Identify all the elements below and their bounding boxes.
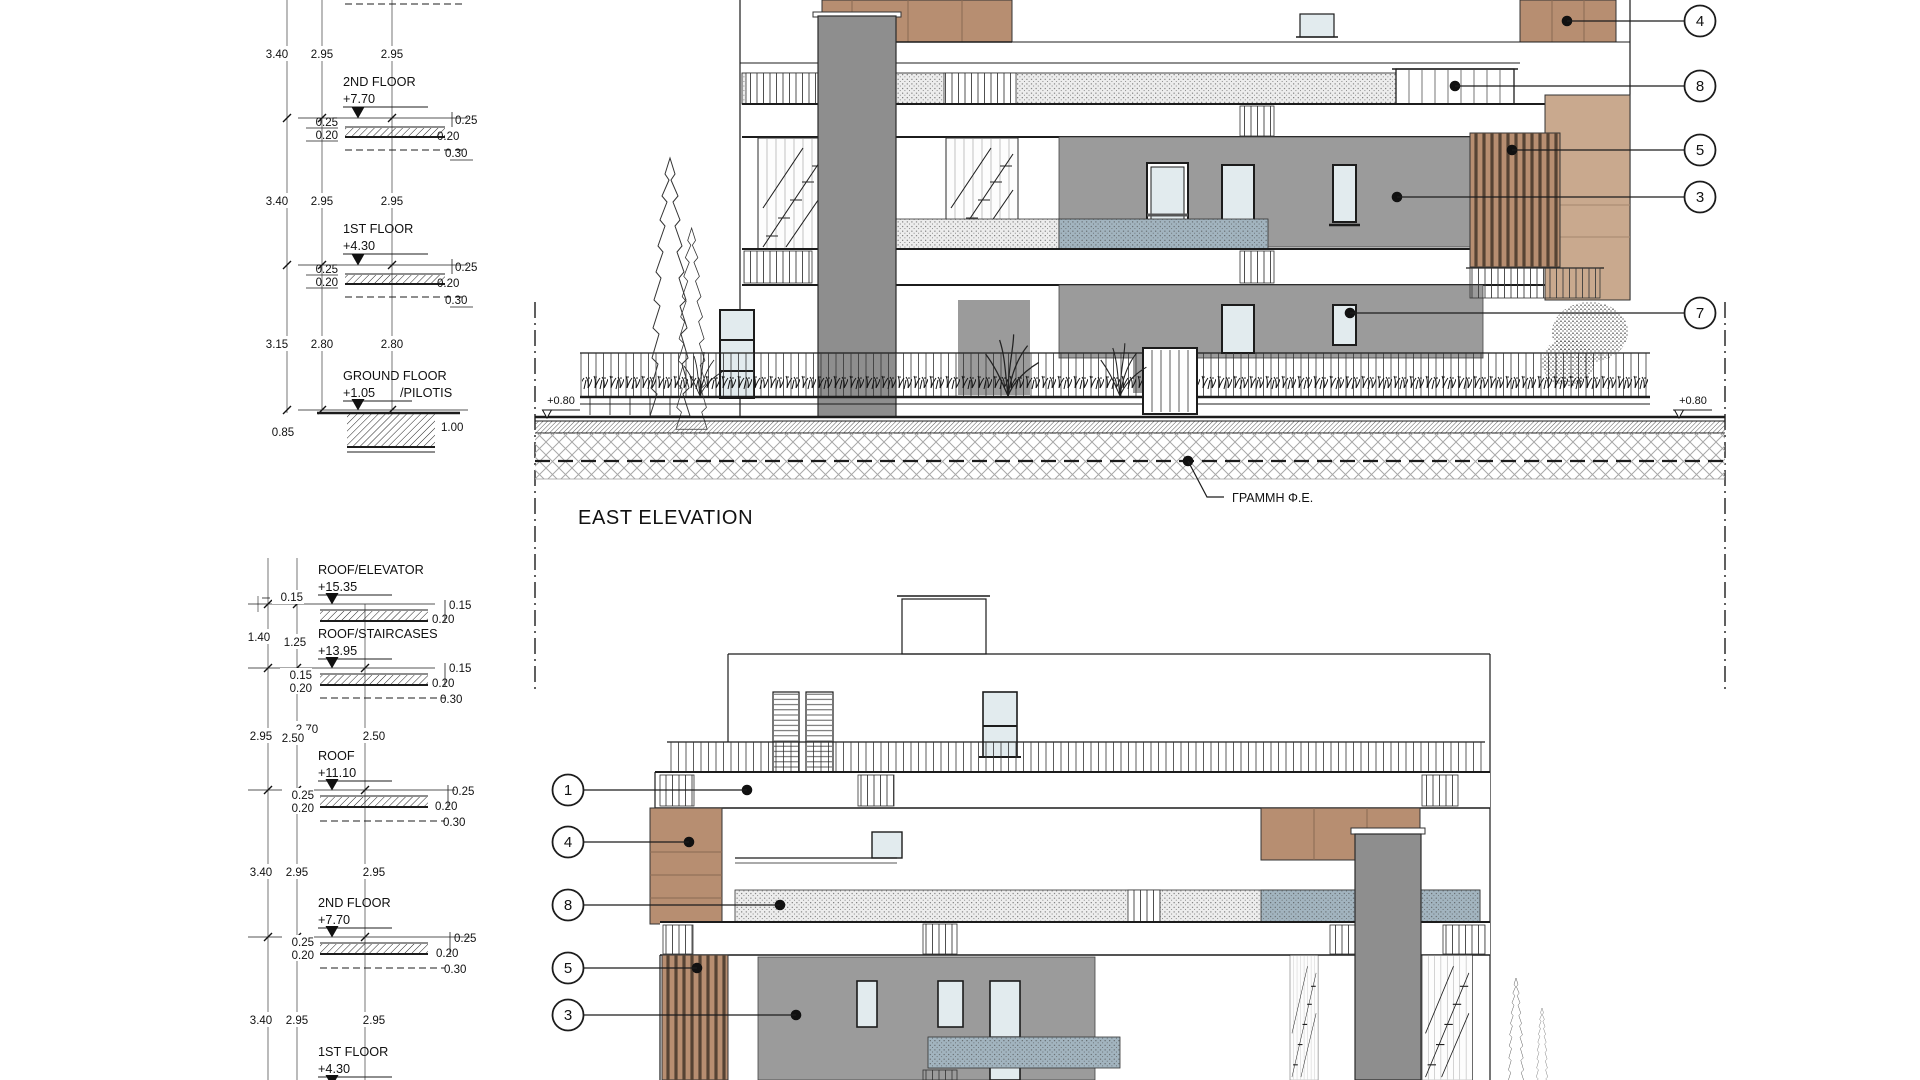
balcony-railing [1240, 106, 1274, 136]
slab-dim: 0.20 [292, 950, 314, 962]
callout-number: 4 [1696, 13, 1704, 30]
floor-label: 2ND FLOOR [343, 75, 416, 89]
floor-level-2nd: 2ND FLOOR +7.70 0.25 0.20 0.25 0.20 0.30 [298, 75, 477, 160]
east-elevation-drawing: ΓΡΑΜΜΗ Φ.Ε. +0.80 +0.80 EAST ELEVATION 4… [535, 0, 1725, 690]
fe-line-label: ΓΡΑΜΜΗ Φ.Ε. [1232, 491, 1313, 505]
slab-dim: 0.30 [445, 295, 467, 307]
dim-row: 3.40 2.95 2.95 [243, 1012, 392, 1027]
ground-level-marker-right: +0.80 [1673, 395, 1712, 418]
floor-elevation: +4.30 [343, 239, 375, 253]
slab-dim: 0.30 [440, 694, 462, 706]
slab-dim: 0.85 [272, 427, 294, 439]
slab-dim: 0.20 [436, 948, 458, 960]
slab-dim: 0.15 [290, 670, 312, 682]
dim-value: 3.40 [266, 196, 288, 208]
facade-brown-panel [650, 808, 722, 924]
level-marker-icon [326, 657, 339, 669]
callout-number: 7 [1696, 305, 1704, 322]
callout-number: 5 [564, 960, 572, 977]
slab-dim: 0.30 [445, 148, 467, 160]
balcony-railing [663, 925, 693, 954]
dim-value: 3.15 [266, 339, 288, 351]
dim-value: 2.95 [311, 49, 333, 61]
slab-hatch [320, 611, 428, 620]
slab-dim: 0.25 [455, 262, 477, 274]
dim-row: 3.40 2.95 2.95 [258, 193, 411, 208]
floor-elevation: +11.10 [318, 766, 356, 780]
slab-dim: 0.20 [437, 278, 459, 290]
floor-label: 2ND FLOOR [318, 896, 391, 910]
dim-value: 1.25 [284, 637, 306, 649]
level-marker-icon [326, 926, 339, 938]
callout-number: 8 [564, 897, 572, 914]
roof-parapet-box [902, 599, 986, 654]
window [1222, 305, 1254, 353]
callout-number: 4 [564, 834, 572, 851]
slab-dim: 0.25 [316, 117, 338, 129]
balcony-railing [744, 251, 812, 283]
slab-hatch [320, 944, 428, 953]
slab-dim: 0.25 [452, 786, 474, 798]
dim-value: 2.50 [282, 733, 304, 745]
pavement-hatch [535, 421, 1725, 433]
dim-value: 2.95 [381, 196, 403, 208]
callout-number: 5 [1696, 142, 1704, 159]
slab-dim: 0.25 [455, 115, 477, 127]
floor-label: ROOF [318, 749, 355, 763]
floor-level-ground: GROUND FLOOR +1.05 /PILOTIS 0.85 1.00 [265, 369, 468, 452]
slab-dim: 0.20 [292, 803, 314, 815]
balcony-railing [923, 1070, 957, 1080]
spiral-staircase-glazing [1290, 955, 1318, 1080]
dim-value: 3.40 [250, 867, 272, 879]
slab-hatch [320, 675, 428, 684]
ground-section [535, 417, 1725, 479]
fence-planting [582, 371, 1648, 396]
floor-label-suffix: /PILOTIS [400, 386, 452, 400]
slab-dim: 0.25 [292, 937, 314, 949]
dim-value: 2.95 [286, 1015, 308, 1027]
spiral-staircase-glazing [1422, 955, 1472, 1080]
elevation-sheet-canvas: 3.40 2.95 2.95 3.40 2.95 2.95 3.15 2.80 … [0, 0, 1920, 1080]
floor-level-2nd: 2ND FLOOR +7.70 0.25 0.20 0.25 0.20 0.30 [248, 896, 476, 976]
dim-row: 2.95 2.70 2.50 2.50 [243, 721, 392, 745]
dim-row: 3.15 2.80 2.80 [258, 336, 411, 351]
floor-elevation: +7.70 [318, 913, 350, 927]
level-value: +0.80 [547, 395, 575, 407]
slab-dim: 0.20 [432, 678, 454, 690]
balcony-railing [1470, 268, 1600, 298]
slab-dim: 0.20 [432, 614, 454, 626]
drawing-title: EAST ELEVATION [578, 507, 753, 529]
floor-label: ROOF/STAIRCASES [318, 627, 438, 641]
ground-level-marker-left: +0.80 [542, 395, 580, 418]
facade-gray-wall [1059, 285, 1483, 358]
slab-dim: 0.25 [316, 264, 338, 276]
second-elevation-drawing: 1 4 8 5 3 [553, 596, 1549, 1080]
slab-dim: 0.20 [316, 277, 338, 289]
balcony-railing [746, 73, 818, 104]
window [857, 981, 877, 1027]
slab-dim: 0.15 [449, 600, 471, 612]
bottom-dimension-stack: ROOF/ELEVATOR +15.35 0.15 0.15 0.20 1.40… [241, 558, 476, 1080]
dim-value: 2.95 [381, 49, 403, 61]
balcony-railing [1128, 890, 1160, 922]
top-dimension-stack: 3.40 2.95 2.95 3.40 2.95 2.95 3.15 2.80 … [258, 0, 477, 452]
dim-value: 3.40 [266, 49, 288, 61]
balcony-railing [923, 924, 957, 954]
floor-elevation: +1.05 [343, 386, 375, 400]
slab-hatch [345, 128, 445, 136]
floor-label: 1ST FLOOR [343, 222, 413, 236]
dim-row: 3.40 2.95 2.95 [243, 864, 392, 879]
slab-dim: 0.20 [435, 801, 457, 813]
slab-dim: 0.30 [444, 964, 466, 976]
window [1222, 165, 1254, 222]
floor-level-1st: 1ST FLOOR +4.30 [318, 1045, 392, 1080]
dim-row: 1.40 1.25 [241, 629, 313, 649]
floor-label: GROUND FLOOR [343, 369, 447, 383]
balcony-railing [944, 73, 1016, 104]
dim-value: 3.40 [250, 1015, 272, 1027]
building-facade [650, 596, 1490, 1080]
floor-level-roof: ROOF +11.10 0.25 0.20 0.25 0.20 0.30 [248, 749, 474, 829]
dim-row: 3.40 2.95 2.95 [258, 46, 411, 61]
slab-hatch [320, 797, 428, 806]
callout-number: 8 [1696, 78, 1704, 95]
dim-value: 2.80 [311, 339, 333, 351]
window [938, 981, 963, 1027]
slab-dim: 0.25 [454, 933, 476, 945]
dim-value: 2.95 [311, 196, 333, 208]
level-marker-icon [326, 1075, 339, 1080]
balcony-railing [858, 775, 894, 806]
callout-number: 3 [1696, 189, 1704, 206]
level-marker-icon [352, 107, 365, 119]
level-marker-icon [352, 254, 365, 266]
window [872, 832, 902, 858]
slab-dim: 0.25 [292, 790, 314, 802]
column-cap [1351, 828, 1425, 834]
window [1333, 165, 1356, 222]
floor-elevation: +4.30 [318, 1062, 350, 1076]
cypress-tree-icon [1508, 978, 1524, 1080]
level-value: +0.80 [1679, 395, 1707, 407]
drawing-sheet: 3.40 2.95 2.95 3.40 2.95 2.95 3.15 2.80 … [0, 0, 1920, 1080]
floor-level-1st: 1ST FLOOR +4.30 0.25 0.20 0.25 0.20 0.30 [298, 222, 477, 307]
subgrade-hatch [535, 433, 1725, 479]
level-marker-icon [352, 399, 365, 411]
dim-value: 2.95 [250, 731, 272, 743]
facade-column [1355, 834, 1421, 1080]
floor-elevation: +15.35 [318, 580, 357, 594]
dim-value: 2.95 [363, 1015, 385, 1027]
skylight-window [1300, 14, 1334, 37]
slab-dim: 0.20 [316, 130, 338, 142]
dim-value: 2.95 [363, 867, 385, 879]
balcony-railing [1443, 925, 1485, 954]
dim-value: 2.50 [363, 731, 385, 743]
callout-number: 3 [564, 1007, 572, 1024]
dim-value: 2.95 [286, 867, 308, 879]
slab-dim: 1.00 [441, 422, 463, 434]
balcony-railing [1240, 251, 1274, 283]
dim-value: 2.80 [381, 339, 403, 351]
slab-dim: 0.20 [290, 683, 312, 695]
floor-slab [655, 772, 1490, 808]
roof-terrace-railing [667, 742, 1485, 772]
floor-label: 1ST FLOOR [318, 1045, 388, 1059]
level-marker-icon [326, 779, 339, 791]
dim-value: 1.40 [248, 632, 270, 644]
slab-hatch [345, 275, 445, 283]
floor-level-roof-elevator: ROOF/ELEVATOR +15.35 0.15 0.15 0.20 [248, 563, 471, 626]
cypress-tree-icon [1536, 1008, 1548, 1080]
slab-dim: 0.20 [437, 131, 459, 143]
callout-number: 1 [564, 782, 572, 799]
floor-elevation: +7.70 [343, 92, 375, 106]
ground-slab-hatch [347, 414, 435, 446]
slab-dim: 0.15 [449, 663, 471, 675]
slab-dim: 0.30 [443, 817, 465, 829]
balcony-railing [1422, 775, 1458, 806]
slab-dim: 0.15 [281, 592, 303, 604]
cypress-tree-icon [676, 228, 707, 429]
floor-elevation: +13.95 [318, 644, 357, 658]
level-marker-icon [326, 593, 339, 605]
floor-label: ROOF/ELEVATOR [318, 563, 424, 577]
